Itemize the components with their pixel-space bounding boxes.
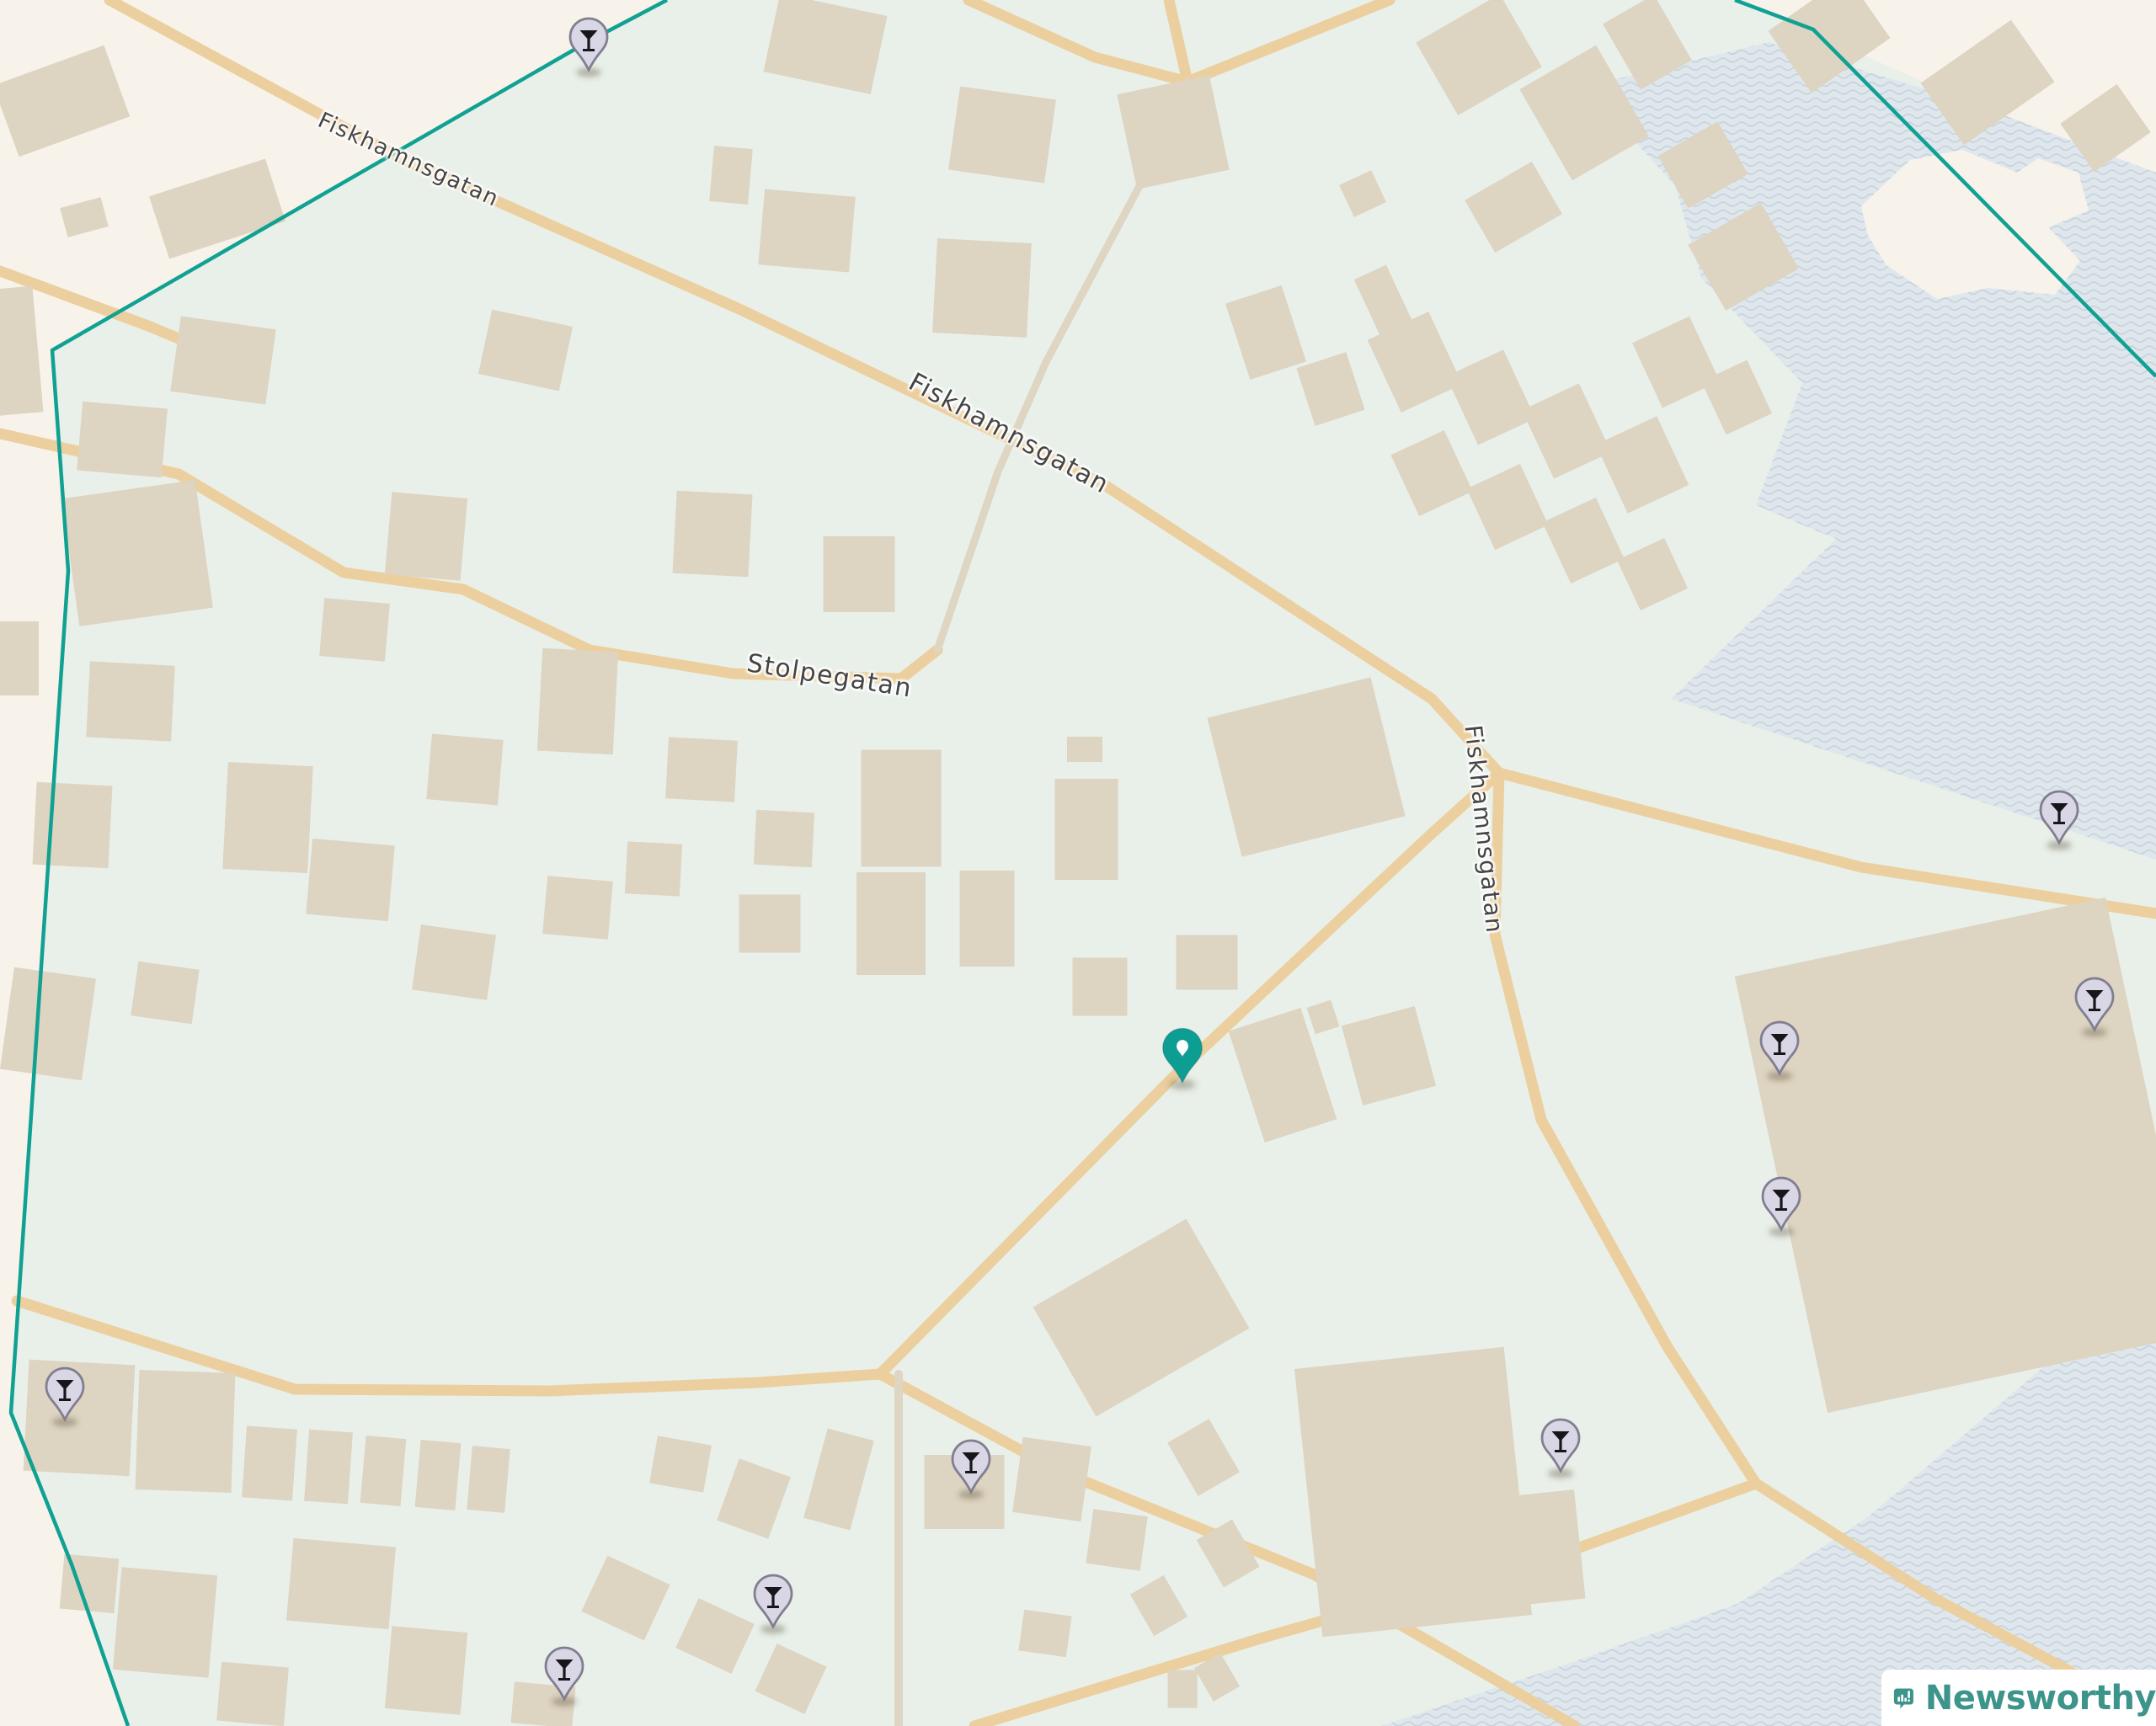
building (1617, 538, 1688, 610)
building (478, 310, 573, 392)
road (969, 0, 1187, 82)
building (61, 480, 213, 626)
building (665, 737, 738, 802)
building (824, 536, 895, 612)
building (755, 1643, 826, 1714)
building (764, 0, 888, 94)
building (1033, 1219, 1250, 1417)
building (1018, 1610, 1071, 1657)
building (467, 1446, 510, 1513)
building (1207, 677, 1405, 856)
building (1596, 416, 1689, 513)
poi-pin[interactable] (570, 19, 607, 77)
building (319, 598, 390, 662)
poi-pin[interactable] (2041, 791, 2078, 850)
building (0, 967, 96, 1080)
building (1339, 170, 1386, 217)
building (932, 238, 1032, 338)
building (672, 491, 752, 578)
building (113, 1567, 217, 1677)
building (412, 924, 496, 1000)
building (426, 733, 503, 805)
building (1390, 430, 1472, 516)
building (1632, 317, 1720, 408)
building (803, 1428, 874, 1530)
building (286, 1538, 396, 1629)
building (360, 1436, 407, 1506)
attribution-brand: Newsworthy (1925, 1679, 2156, 1718)
building (415, 1440, 462, 1510)
building (86, 661, 175, 741)
building (136, 1370, 236, 1493)
building (242, 1426, 297, 1501)
building (1307, 1000, 1340, 1035)
building (1522, 383, 1611, 478)
building (77, 402, 168, 477)
building (1446, 349, 1535, 445)
building (32, 782, 112, 869)
building (625, 841, 682, 896)
building (1735, 898, 2156, 1413)
building (1086, 1509, 1147, 1570)
building (1466, 464, 1548, 550)
building (675, 1598, 755, 1674)
building (948, 86, 1056, 183)
building (385, 492, 467, 580)
building (1012, 1437, 1091, 1522)
building (1542, 498, 1624, 583)
building (1167, 1419, 1240, 1496)
building (1507, 1489, 1585, 1606)
building (170, 317, 275, 405)
building (1177, 935, 1238, 990)
building (1225, 285, 1306, 380)
building (581, 1556, 670, 1641)
poi-pin[interactable] (755, 1575, 792, 1634)
building (709, 146, 753, 205)
building (1130, 1575, 1187, 1636)
building (739, 895, 801, 953)
building (1296, 352, 1364, 426)
map-viewport[interactable]: FiskhamnsgatanFiskhamnsgatanStolpegatanF… (0, 0, 2156, 1726)
building (304, 1430, 353, 1504)
attribution-logo[interactable]: Newsworthy (1881, 1670, 2156, 1726)
building (1416, 0, 1542, 115)
building (960, 871, 1015, 967)
building (131, 962, 199, 1025)
building (1055, 779, 1118, 880)
building (649, 1436, 712, 1492)
building (222, 762, 313, 873)
building (717, 1458, 791, 1539)
building (60, 1554, 119, 1613)
building (542, 876, 613, 940)
building (306, 839, 394, 921)
building (754, 810, 814, 868)
building (216, 1662, 289, 1726)
building (862, 750, 942, 867)
poi-pin[interactable] (1542, 1420, 1579, 1478)
building (1067, 737, 1102, 762)
newsworthy-speech-bubble-icon (1893, 1675, 1914, 1721)
building (1294, 1347, 1532, 1637)
building (1465, 162, 1562, 253)
building (0, 621, 39, 695)
building (1342, 1006, 1436, 1105)
building (1168, 1670, 1198, 1708)
building (758, 189, 855, 272)
building (537, 648, 618, 755)
building (1073, 958, 1128, 1016)
building (857, 872, 926, 975)
road (1169, 0, 1390, 82)
building (385, 1626, 467, 1714)
map-canvas[interactable] (0, 0, 2156, 1726)
building (1117, 75, 1229, 189)
